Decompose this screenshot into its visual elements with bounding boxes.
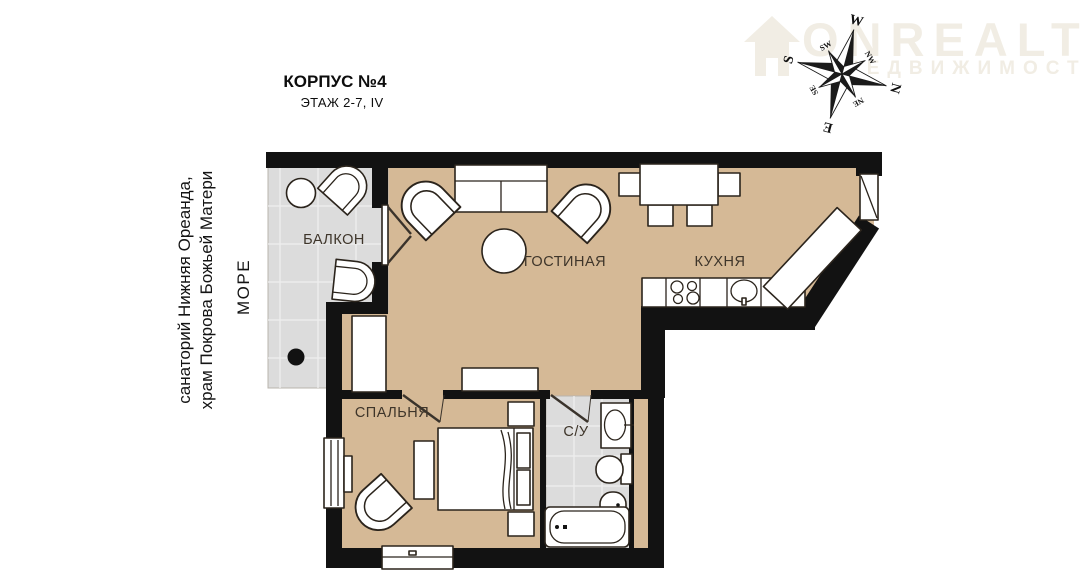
dresser	[414, 441, 434, 499]
landmarks-label: санаторий Нижняя Ореанда, храм Покрова Б…	[174, 150, 218, 430]
balcony-column-dot	[288, 349, 305, 366]
landmarks-line-1: санаторий Нижняя Ореанда,	[174, 150, 196, 430]
toilet	[596, 454, 632, 484]
room-label-bathroom: С/У	[548, 424, 604, 440]
compass-se: SE	[808, 84, 821, 97]
compass-s: S	[781, 54, 798, 66]
landmarks-line-2: храм Покрова Божьей Матери	[196, 150, 218, 430]
room-label-living: ГОСТИНАЯ	[517, 254, 613, 270]
compass-w: W	[847, 12, 864, 30]
dining-chair	[648, 205, 673, 226]
room-label-kitchen: КУХНЯ	[680, 254, 760, 270]
floorplan-drawing: N E S W NE	[0, 0, 1080, 574]
compass-icon: N E S W NE	[766, 0, 918, 150]
compass-ne: NE	[851, 95, 865, 108]
wardrobe	[352, 316, 386, 392]
page-subtitle: ЭТАЖ 2-7, IV	[260, 95, 424, 110]
dining-chair	[619, 173, 641, 196]
dining-table	[640, 164, 718, 205]
nightstand-top	[508, 402, 534, 426]
balcony-table	[287, 179, 316, 208]
room-label-balcony: БАЛКОН	[296, 232, 372, 248]
compass-nw: NW	[863, 50, 878, 66]
bathroom-sink	[601, 403, 634, 448]
floorplan-page: ONREALT НЕДВИЖИМОСТЬ	[0, 0, 1080, 574]
bedroom-bottom-window	[382, 546, 453, 569]
sofa	[455, 165, 547, 212]
bathtub	[545, 507, 629, 547]
compass-e: E	[821, 118, 834, 135]
compass-n: N	[886, 81, 903, 95]
dining-chair	[718, 173, 740, 196]
kitchen-window	[860, 174, 878, 220]
bed	[438, 428, 533, 510]
tv-stand	[462, 368, 538, 391]
sea-label: МОРЕ	[234, 247, 254, 327]
dining-chair	[687, 205, 712, 226]
page-title: КОРПУС №4	[260, 72, 410, 92]
room-label-bedroom: СПАЛЬНЯ	[344, 405, 440, 421]
nightstand-bottom	[508, 512, 534, 536]
compass-sw: SW	[818, 39, 833, 53]
